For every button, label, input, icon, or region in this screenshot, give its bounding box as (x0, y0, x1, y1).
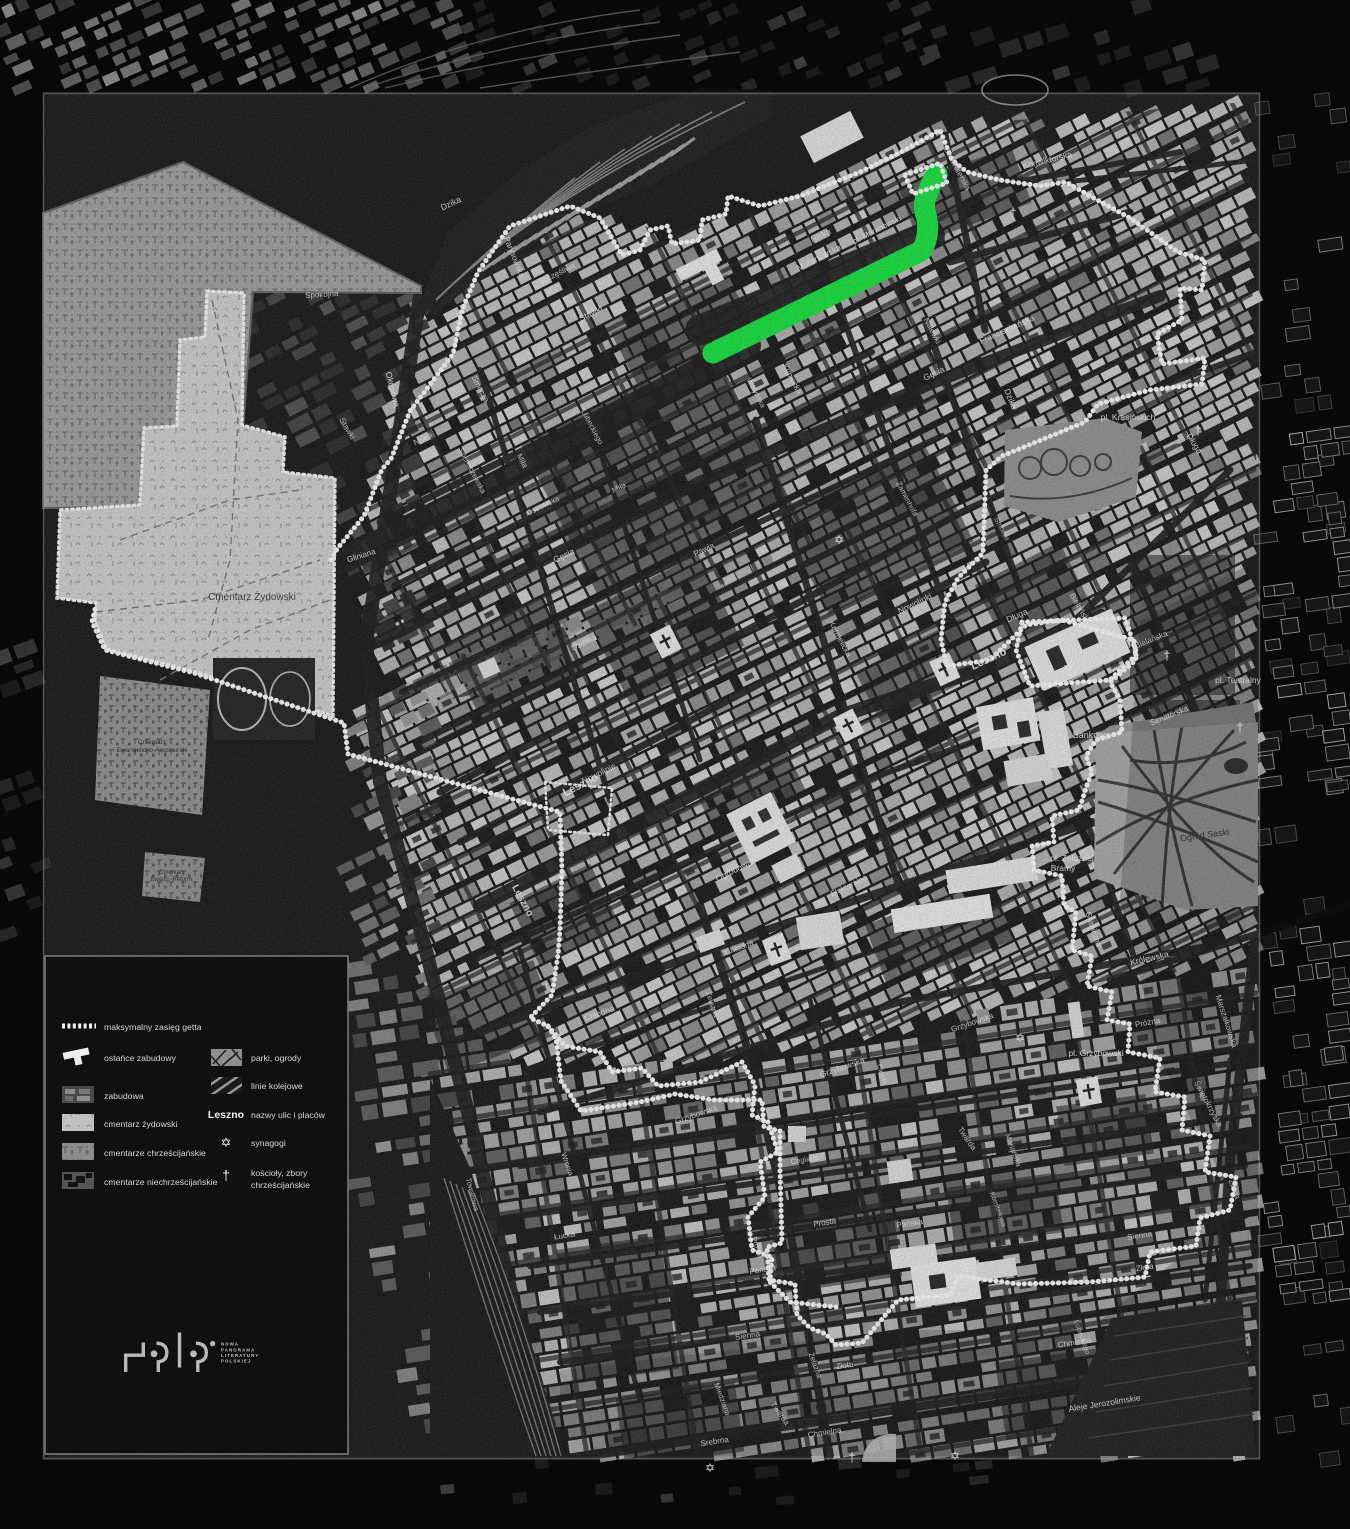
svg-text:maksymalny zasięg getta: maksymalny zasięg getta (104, 1022, 202, 1032)
svg-text:ostańce zabudowy: ostańce zabudowy (104, 1053, 177, 1063)
svg-text:cmentarze chrześcijańskie: cmentarze chrześcijańskie (104, 1148, 206, 1158)
svg-text:synagogi: synagogi (251, 1138, 286, 1148)
svg-text:POLSKIEJ: POLSKIEJ (221, 1359, 252, 1364)
svg-text:cmentarz żydowski: cmentarz żydowski (104, 1119, 177, 1129)
svg-text:†: † (222, 1167, 230, 1183)
svg-text:linie kolejowe: linie kolejowe (251, 1081, 303, 1091)
svg-text:Leszno: Leszno (208, 1109, 244, 1121)
svg-text:parki, ogrody: parki, ogrody (251, 1053, 302, 1063)
svg-text:zabudowa: zabudowa (104, 1091, 144, 1101)
svg-text:NOWA: NOWA (221, 1342, 239, 1347)
svg-text:✡: ✡ (221, 1135, 232, 1150)
svg-text:cmentarze niechrześcijańskie: cmentarze niechrześcijańskie (104, 1177, 218, 1187)
svg-text:PANORAMA: PANORAMA (221, 1347, 255, 1352)
svg-text:LITERATURY: LITERATURY (221, 1353, 259, 1358)
svg-text:nazwy ulic i placów: nazwy ulic i placów (251, 1110, 326, 1120)
svg-text:chrześcijańskie: chrześcijańskie (251, 1180, 310, 1190)
svg-text:kościoły, zbory: kościoły, zbory (251, 1168, 308, 1178)
